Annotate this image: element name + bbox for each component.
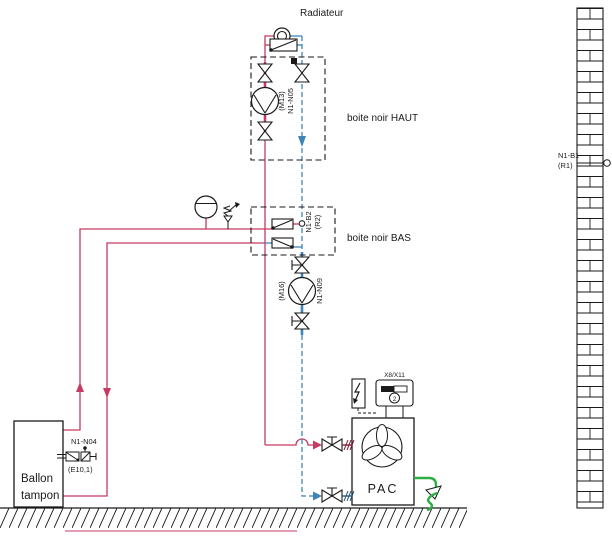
sensor-mid-id: N1-B2 [304,211,313,232]
condensate-drain [414,478,441,510]
pump-m13: (M13) N1-N05 [252,88,296,115]
electrical-dashed-link [358,408,378,413]
outdoor-sensor-icon [604,160,611,167]
flow-arrow-up-icon [76,382,84,392]
pump-m13-icon [252,88,279,115]
heat-pump: PAC [352,418,414,505]
bypass-valve [269,39,297,52]
tank-label-1: Ballon [21,473,53,485]
flow-arrow-down-cold-icon [298,136,306,147]
pump-m16-motor-tag: (M16) [277,281,286,301]
pump-m16-section: (M16) N1-N09 [277,257,324,329]
cold-riser-dashed-bottom [302,335,313,496]
hydraulic-schematic: N1-B1 (R1) Radiateur [0,0,612,537]
flow-arrow-right-hot-icon [313,441,322,450]
flow-arrow-right-cold-icon [313,492,322,501]
black-box-bottom: boite noir BAS N1-B2 (R2) [251,207,411,255]
flow-arrow-down-icon [103,388,111,398]
valve-top-hot-icon [258,64,272,82]
check-valve-lower [272,238,294,249]
tank-sensor-id: N1-N04 [71,437,97,446]
outdoor-sensor-ref: (R1) [558,161,573,170]
pac-valve-hot-icon [322,439,332,451]
black-box-bottom-label: boite noir BAS [347,233,411,244]
valve-m16-bottom-icon [292,313,309,329]
pump-m16: (M16) N1-N09 [277,278,324,305]
controller-display [381,386,394,392]
pac-valve-cold-icon [322,490,332,502]
pump-m13-id-tag: N1-N05 [286,88,295,114]
safety-valve-icon [224,202,240,229]
controller-legs [386,406,403,418]
buffer-tank: Ballon tampon N1-N04 (E10,1) [14,421,97,507]
radiator-label: Radiateur [300,8,344,19]
hot-supply-from-tank [63,229,272,430]
exterior-wall: N1-B1 (R1) [558,8,610,508]
electrical-box [352,379,378,413]
tank-sensor-ref: (E10,1) [68,465,93,474]
schematic-page: N1-B1 (R1) Radiateur [0,0,612,537]
hot-run-to-pac [265,439,314,445]
controller-id: X8/X11 [384,372,405,379]
tank-label-2: tampon [21,490,59,502]
hot-return-to-tank [63,243,265,496]
expansion-group [195,196,240,229]
valve-m16-top-icon [292,257,309,273]
floor-hatch [0,508,467,528]
pac-valve-cold [322,488,354,502]
black-box-top-label: boite noir HAUT [347,113,418,124]
black-box-top: boite noir HAUT (M13) N1-N05 [251,57,418,160]
check-valve-upper [271,219,293,230]
valve-top-cold-icon [291,58,309,82]
outdoor-sensor-id: N1-B1 [558,151,579,160]
expansion-vessel-icon [195,196,217,218]
pump-m16-icon [289,278,316,305]
floor [0,508,467,531]
controller-number: 2 [393,396,397,403]
heat-pump-label: PAC [368,482,399,496]
drain-pipe [414,478,436,489]
valve-actuator-dot [291,58,297,64]
pump-m16-id-tag: N1-N09 [315,278,324,304]
pump-m13-motor-tag: (M13) [277,91,286,111]
wall-body [577,8,603,508]
pac-valve-hot [322,437,354,451]
controller: 2 X8/X11 [376,372,413,418]
sensor-mid-ref: (R2) [313,214,322,229]
valve-bottom-hot-icon [258,122,272,140]
